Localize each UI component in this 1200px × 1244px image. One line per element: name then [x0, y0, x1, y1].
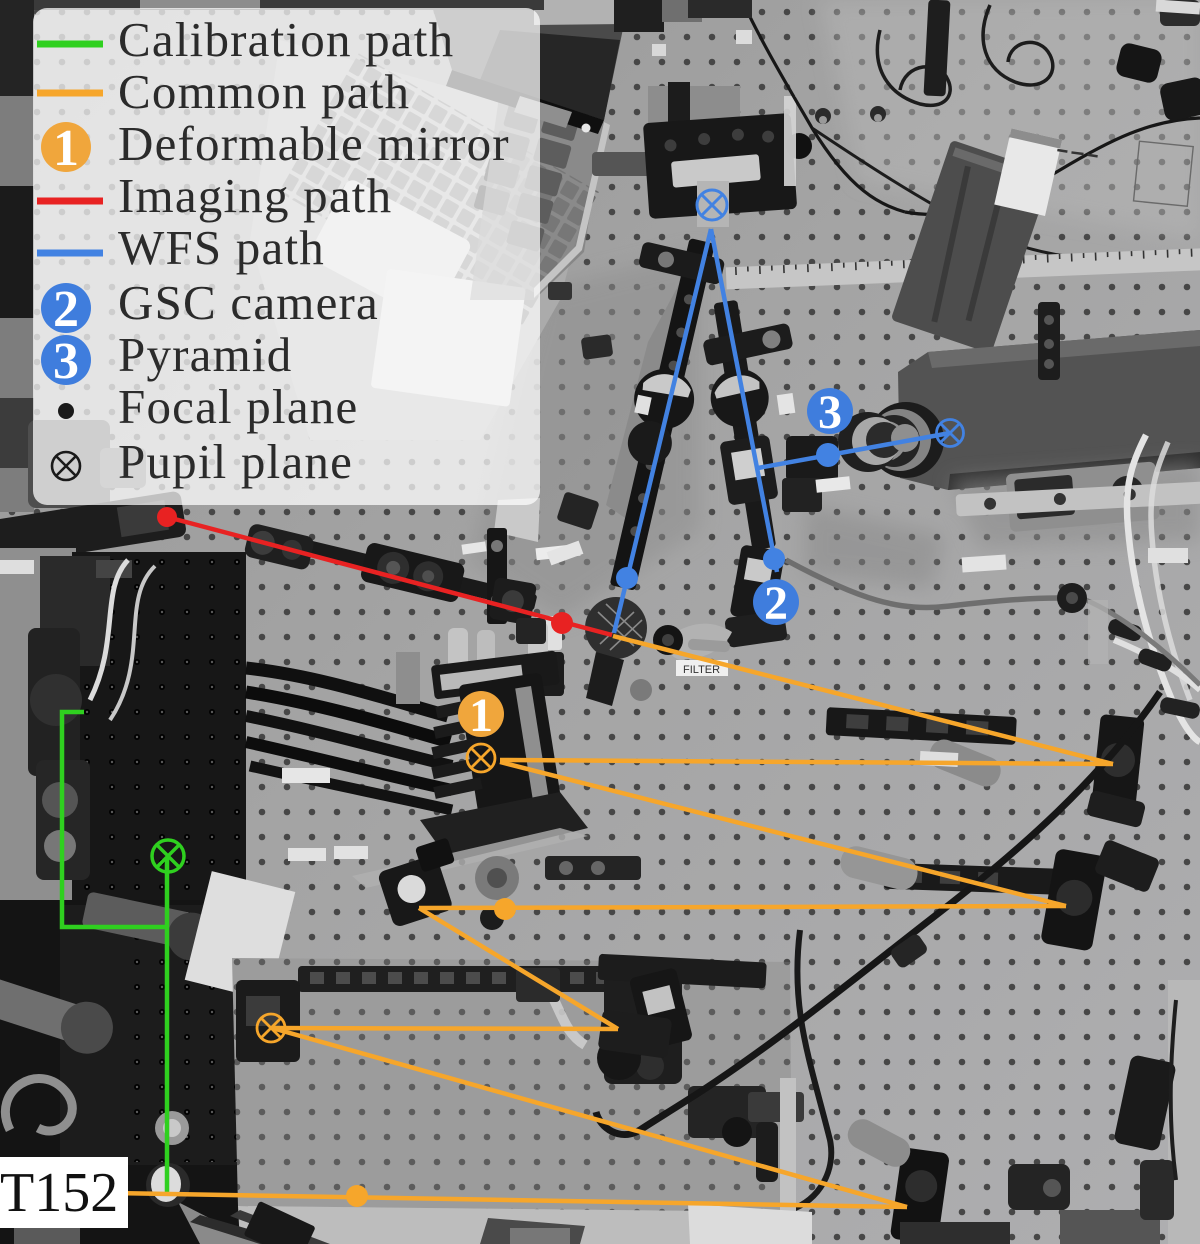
svg-text:Pyramid: Pyramid [118, 327, 292, 382]
svg-text:WFS path: WFS path [118, 220, 325, 275]
svg-text:T152: T152 [0, 1162, 118, 1224]
svg-text:2: 2 [53, 281, 79, 338]
svg-text:3: 3 [818, 386, 842, 439]
svg-text:Imaging path: Imaging path [118, 168, 392, 223]
svg-text:GSC camera: GSC camera [118, 275, 379, 330]
svg-text:2: 2 [764, 577, 788, 630]
svg-text:1: 1 [53, 120, 79, 177]
svg-text:Focal plane: Focal plane [118, 379, 358, 434]
svg-text:Common path: Common path [118, 64, 410, 119]
svg-text:3: 3 [53, 333, 79, 390]
svg-text:Pupil plane: Pupil plane [118, 434, 353, 489]
svg-text:Calibration path: Calibration path [118, 12, 454, 67]
svg-text:1: 1 [469, 689, 493, 742]
svg-text:FILTER: FILTER [683, 664, 720, 676]
svg-text:Deformable mirror: Deformable mirror [118, 116, 510, 171]
